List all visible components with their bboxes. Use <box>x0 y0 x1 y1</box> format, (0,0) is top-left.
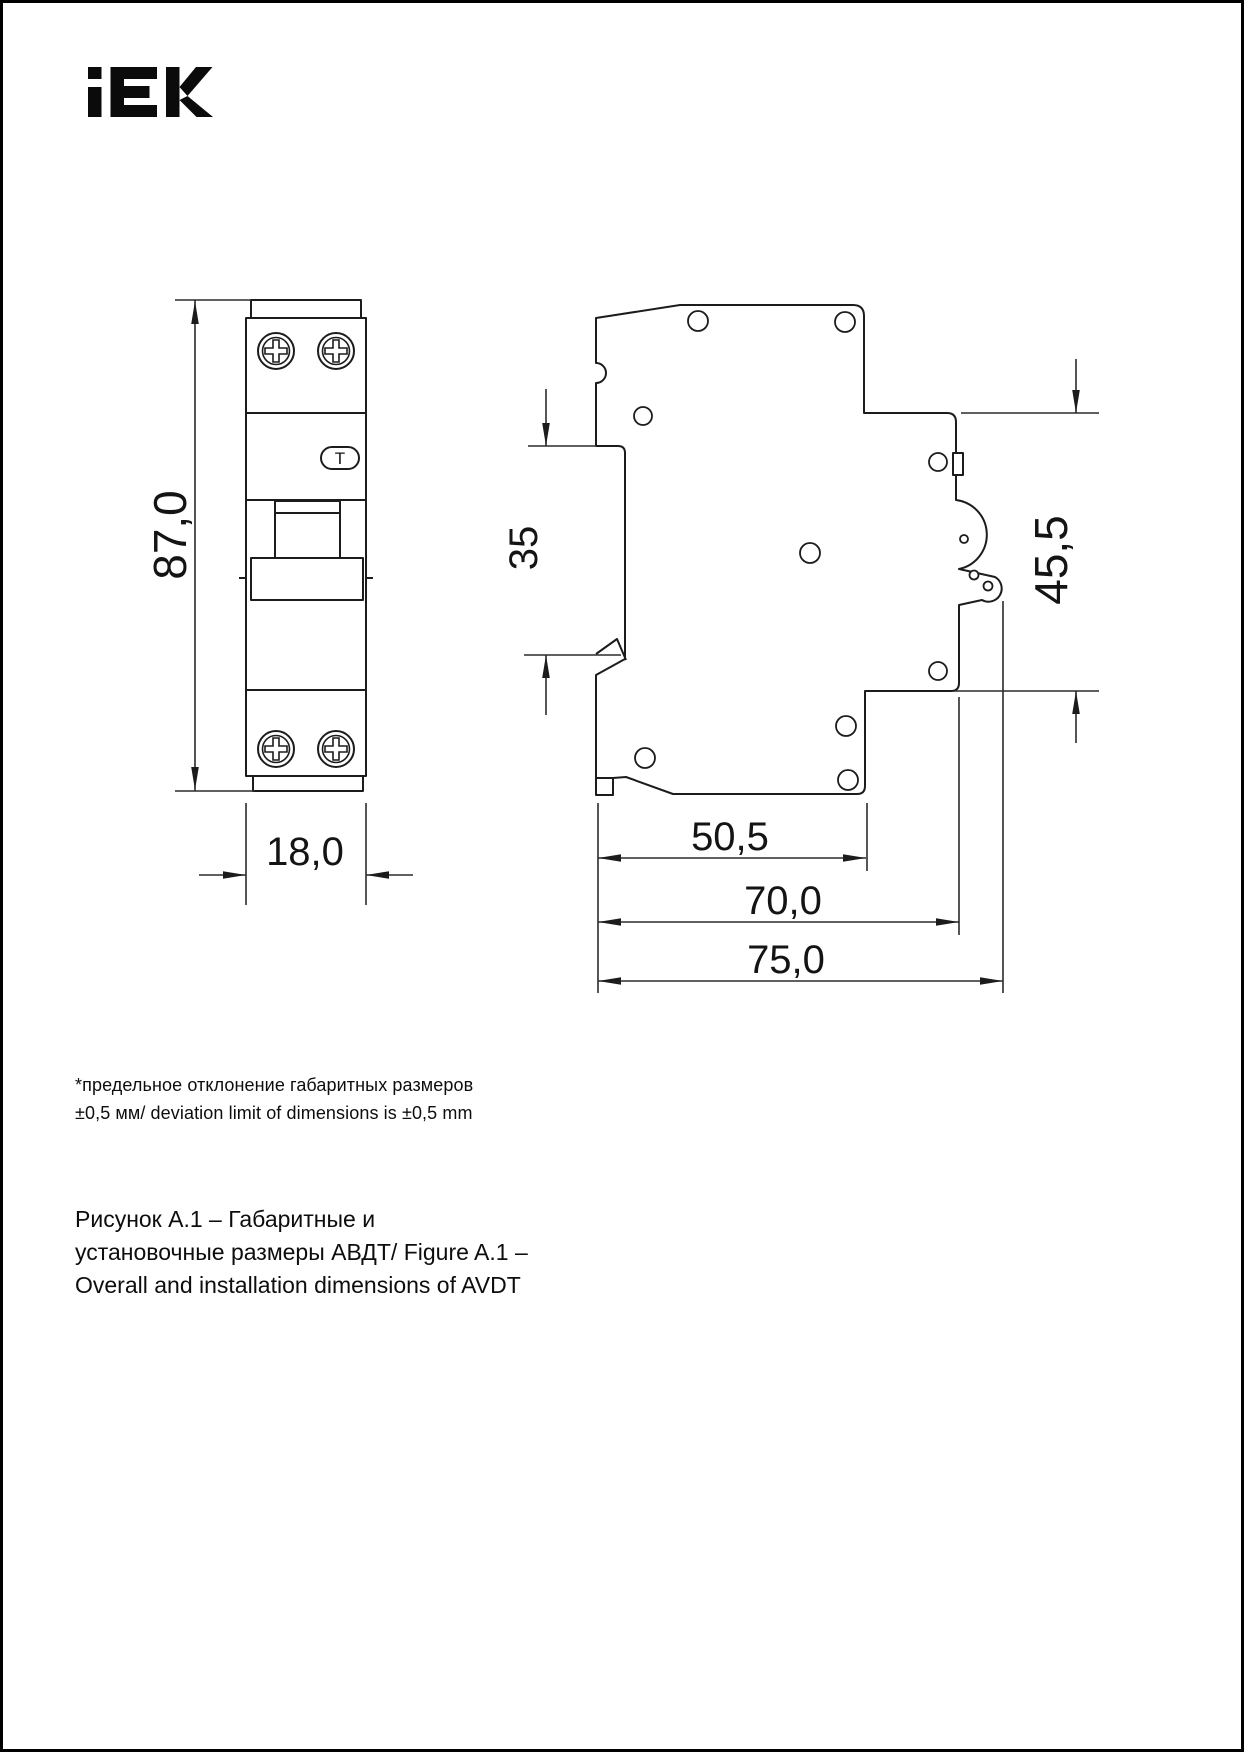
dim-depth-face-label: 70,0 <box>744 879 822 923</box>
screw-top-right <box>318 333 354 369</box>
datasheet-page: IEK <box>0 0 1244 1752</box>
toggle-handle <box>251 558 363 600</box>
deviation-note-line2: ±0,5 мм/ deviation limit of dimensions i… <box>75 1099 535 1127</box>
deviation-note-line1: *предельное отклонение габаритных размер… <box>75 1071 535 1099</box>
front-view: T 87,0 1 <box>144 300 413 905</box>
screw-bottom-left <box>258 731 294 767</box>
dim-depth-body-label: 50,5 <box>691 815 769 859</box>
front-body <box>246 318 366 776</box>
screw-bottom-right <box>318 731 354 767</box>
front-top-cap <box>251 300 361 318</box>
dimension-drawing: T 87,0 1 <box>3 3 1244 1063</box>
figure-caption: Рисунок А.1 – Габаритные и установочные … <box>75 1203 635 1302</box>
side-outline <box>596 305 1002 794</box>
figure-caption-line2: установочные размеры АВДТ/ Figure A.1 – <box>75 1236 635 1269</box>
figure-caption-line1: Рисунок А.1 – Габаритные и <box>75 1203 635 1236</box>
test-button-label: T <box>335 449 345 468</box>
side-view: 35 45,5 50,5 <box>502 305 1099 993</box>
dim-depth-total-label: 75,0 <box>747 938 825 982</box>
din-clip-tab <box>596 778 613 795</box>
dim-front-height: 87,0 <box>144 300 255 791</box>
front-bottom-cap <box>253 776 363 791</box>
dim-front-width-label: 18,0 <box>266 830 344 874</box>
dim-front-section-label: 45,5 <box>1025 515 1077 605</box>
dim-front-height-label: 87,0 <box>144 490 196 580</box>
deviation-note: *предельное отклонение габаритных размер… <box>75 1071 535 1127</box>
dim-front-width: 18,0 <box>199 803 413 905</box>
dim-din-rail-label: 35 <box>502 526 546 571</box>
screw-top-left <box>258 333 294 369</box>
latch-slider <box>953 453 963 475</box>
figure-caption-line3: Overall and installation dimensions of A… <box>75 1269 635 1302</box>
din-clip-flap <box>596 639 626 660</box>
